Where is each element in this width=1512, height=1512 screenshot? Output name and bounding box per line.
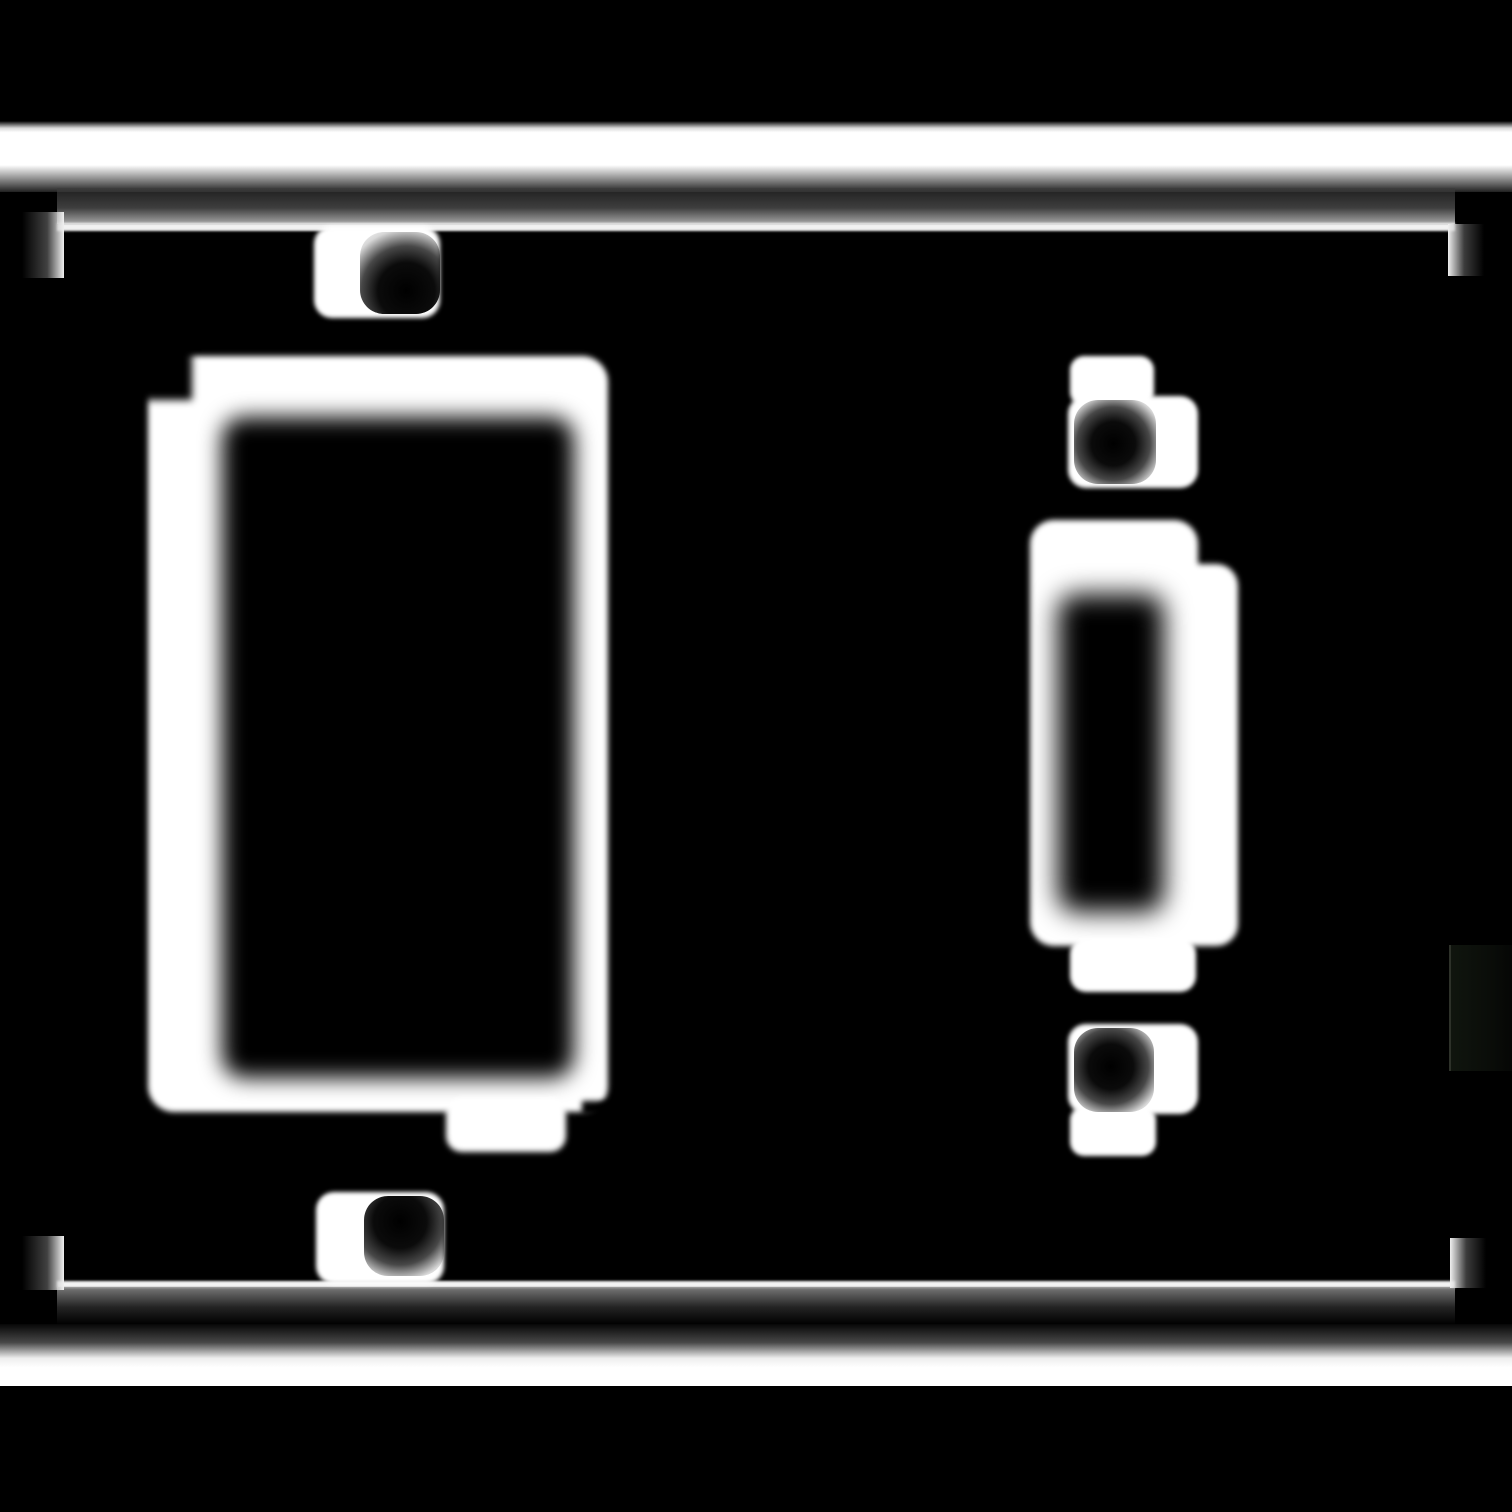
right-screw-top-recess <box>1074 400 1156 484</box>
rocker-outline-step-bottom-right <box>582 1101 614 1115</box>
frame-corner-tick-top-right <box>1448 224 1484 276</box>
right-screw-bottom-tab <box>1070 1106 1156 1156</box>
right-screw-bottom-recess <box>1074 1028 1154 1112</box>
toggle-bottom-tab <box>1070 938 1196 992</box>
frame-corner-tick-bottom-left <box>22 1236 64 1290</box>
top-highlight-band <box>0 121 1512 192</box>
left-screw-bottom-recess <box>364 1196 444 1276</box>
right-edge-dark-patch <box>1449 945 1512 1071</box>
frame-top-shading <box>57 188 1455 224</box>
frame-bottom-shading <box>57 1287 1455 1324</box>
toggle-slot-cutout <box>1058 594 1164 912</box>
left-screw-top-recess <box>360 232 440 314</box>
rocker-bottom-tab <box>446 1098 566 1152</box>
wall-plate-mask-image <box>0 0 1512 1512</box>
frame-top-edge <box>57 223 1455 231</box>
rocker-opening-cutout <box>222 417 574 1078</box>
bottom-highlight-band <box>0 1324 1512 1386</box>
frame-corner-tick-top-left <box>22 212 64 278</box>
rocker-outline-notch-top-left <box>134 344 192 400</box>
frame-corner-tick-bottom-right <box>1450 1238 1486 1288</box>
